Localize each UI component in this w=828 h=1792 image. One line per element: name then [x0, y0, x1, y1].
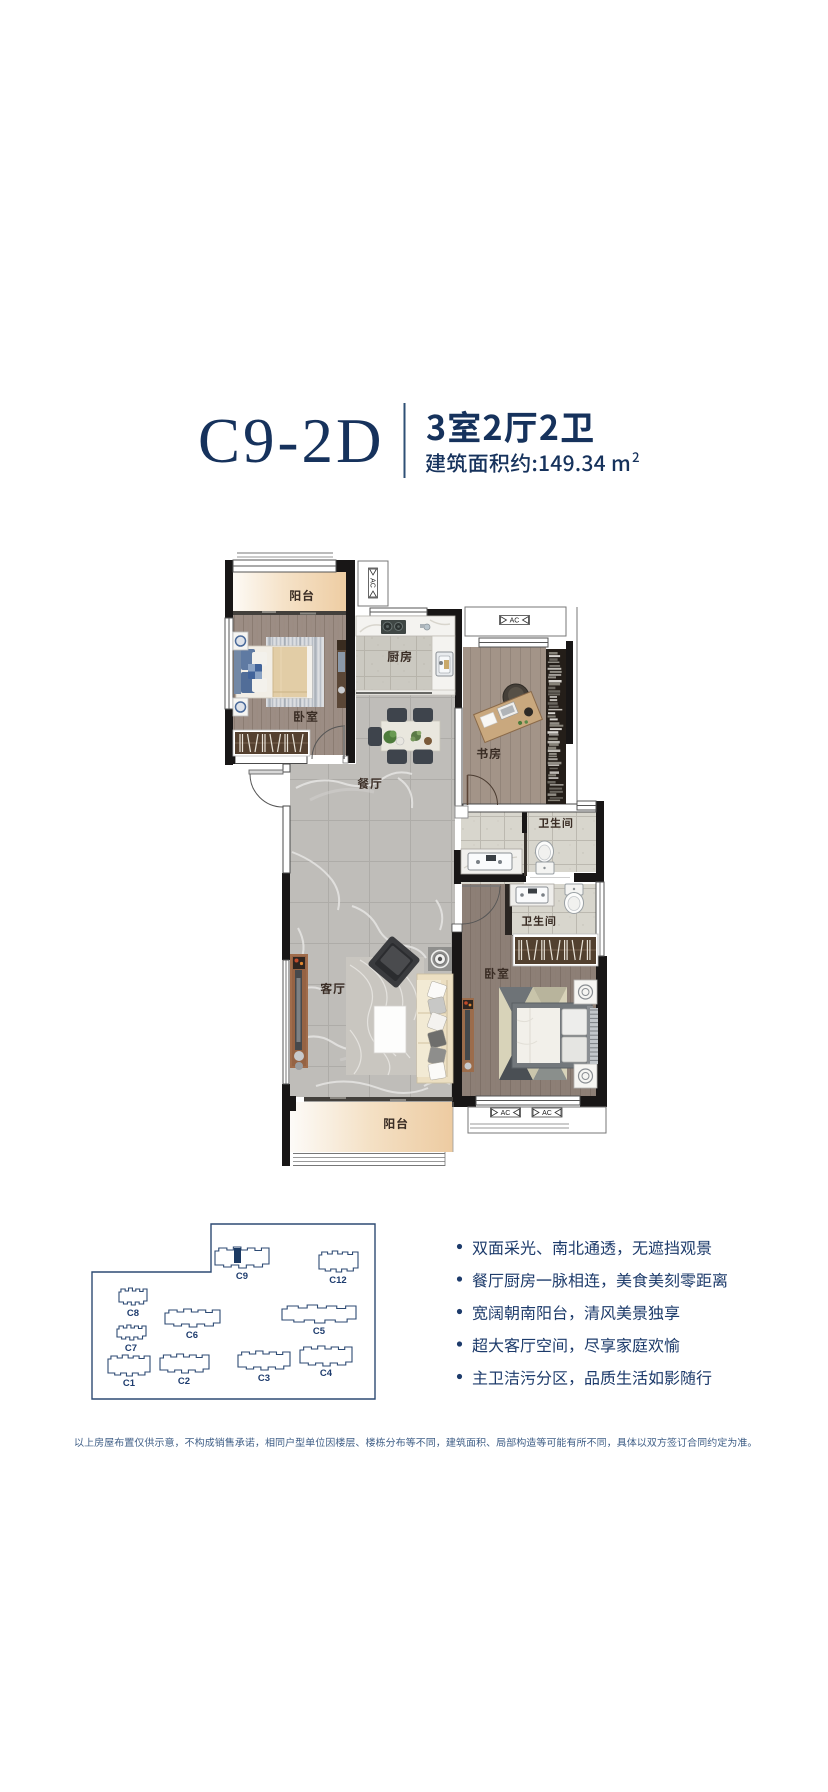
svg-text:C5: C5 [313, 1326, 326, 1337]
svg-text:C1: C1 [123, 1378, 136, 1389]
svg-text:C2: C2 [178, 1376, 190, 1387]
svg-text:AC: AC [542, 1110, 552, 1117]
svg-text:C7: C7 [125, 1343, 137, 1354]
svg-text:C9: C9 [236, 1271, 248, 1282]
svg-text:C3: C3 [258, 1373, 270, 1384]
svg-text:AC: AC [501, 1110, 511, 1117]
svg-text:AC: AC [368, 578, 375, 588]
svg-text:C8: C8 [127, 1308, 139, 1319]
svg-text:C6: C6 [186, 1330, 198, 1341]
svg-text:C4: C4 [320, 1368, 333, 1379]
svg-text:C12: C12 [329, 1275, 346, 1286]
svg-text:AC: AC [510, 618, 520, 625]
